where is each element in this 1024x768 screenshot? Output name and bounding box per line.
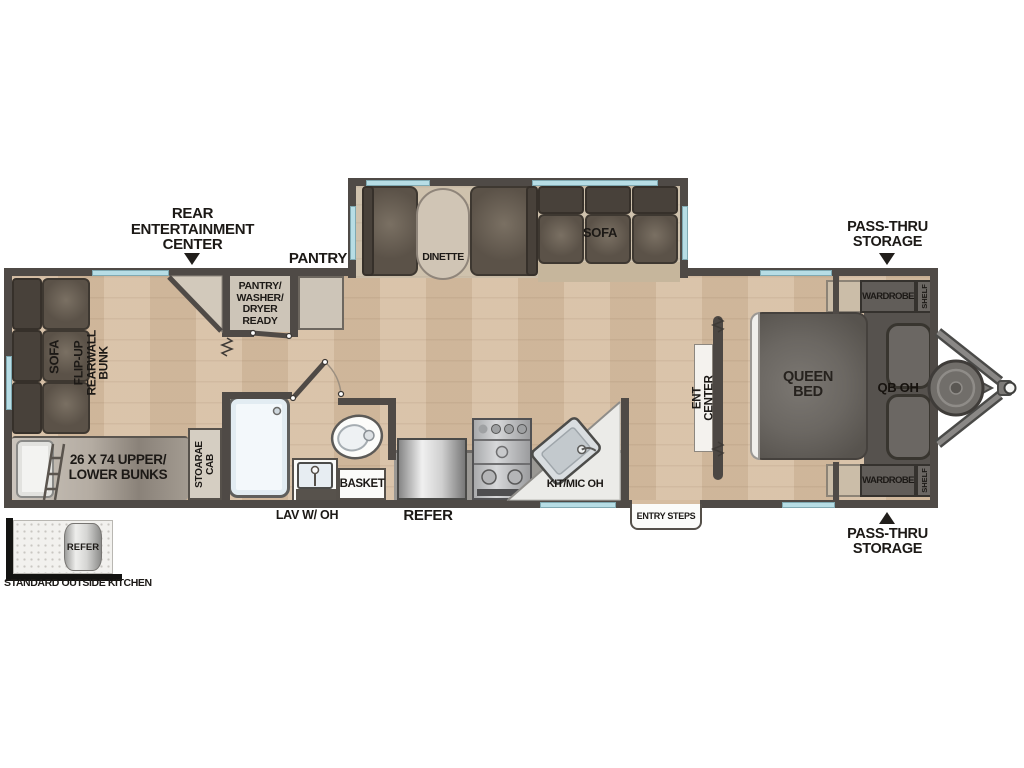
ent-center-label: ENT CENTER — [694, 344, 713, 452]
bed-sheet-edge — [750, 312, 760, 460]
pillow — [886, 394, 932, 460]
wall-right-front — [930, 268, 938, 508]
window — [540, 502, 616, 508]
flip-up-bunk-label: FLIP-UP REARWALL BUNK — [62, 275, 122, 450]
slideout-sofa-label: SOFA — [560, 226, 640, 240]
slideout-sofa-back-cushion — [632, 186, 678, 214]
trailer-hitch — [929, 332, 1016, 444]
outside-kitchen-refrigerator: REFER — [64, 523, 102, 571]
qb-oh-label: QB OH — [866, 381, 930, 395]
passthru-wall-bottom — [833, 462, 839, 500]
shelf-top-label: SHELF — [920, 284, 929, 309]
pass-thru-bottom-arrow-icon — [879, 512, 895, 524]
dinette-label: DINETTE — [416, 252, 470, 263]
kitchen-entry-wall — [621, 398, 629, 500]
wardrobe-top: WARDROBE — [860, 280, 916, 313]
lav-sink — [297, 462, 333, 489]
queen-bed-label: QUEEN BED — [760, 370, 856, 400]
dinette-bench-left-back — [362, 186, 374, 276]
closet-bottom-wall — [222, 330, 254, 337]
rear-entertainment-center-callout: REAR ENTERTAINMENT CENTER — [110, 206, 275, 253]
basket-box: BASKET — [338, 468, 386, 500]
outside-kitchen-frame-left — [6, 518, 13, 580]
bath-top-wall — [222, 392, 292, 399]
window — [682, 206, 688, 260]
lav-label: LAV W/ OH — [267, 509, 347, 522]
dinette-table — [416, 188, 470, 280]
pass-thru-storage-bottom-callout: PASS-THRU STORAGE — [845, 527, 930, 557]
hitch-coupler-ring — [1005, 383, 1016, 394]
rear-entertainment-arrow-icon — [184, 253, 200, 265]
entry-steps: ENTRY STEPS — [630, 504, 702, 530]
window — [532, 180, 658, 186]
bunks-label: 26 X 74 UPPER/ LOWER BUNKS — [48, 452, 188, 482]
stove — [472, 418, 532, 500]
window — [760, 270, 832, 276]
slideout-sofa-platform — [538, 262, 680, 282]
pass-thru-storage-top-callout: PASS-THRU STORAGE — [845, 220, 930, 250]
shelf-bottom-label: SHELF — [920, 468, 929, 493]
propane-tank-inner — [938, 370, 974, 406]
kit-mic-oh-label: KIT/MIC OH — [535, 479, 615, 490]
window — [6, 356, 12, 410]
floorplan-canvas: BASKET WARDROBE WARDROBE SHELF SHELF ENT… — [0, 0, 1024, 768]
toilet-room-right-wall — [388, 398, 396, 460]
passthru-cabinet-bottom — [826, 464, 862, 497]
wall-top-left — [4, 268, 348, 276]
hitch-plate — [962, 372, 992, 404]
pantry-closet-label: PANTRY/ WASHER/ DRYER READY — [228, 281, 292, 327]
hitch-coupler — [998, 381, 1012, 395]
passthru-cabinet-top — [826, 280, 862, 313]
shower — [228, 396, 290, 498]
refer-label: REFER — [393, 508, 463, 524]
window — [366, 180, 430, 186]
refrigerator — [397, 438, 467, 500]
wardrobe-bottom: WARDROBE — [860, 464, 916, 497]
dinette-bench-right-back — [526, 186, 538, 276]
slideout-sofa-back-cushion — [585, 186, 631, 214]
storage-cab-label: STOARAE CAB — [186, 428, 224, 500]
slideout-sofa-back-cushion — [538, 186, 584, 214]
passthru-wall-top — [833, 276, 839, 314]
lav-base-cabinet — [296, 489, 336, 500]
hitch-plate-hole — [969, 384, 977, 392]
pantry-callout: PANTRY — [287, 251, 349, 267]
pass-thru-top-arrow-icon — [879, 253, 895, 265]
window — [782, 502, 835, 508]
window — [350, 206, 356, 260]
outside-kitchen-caption: STANDARD OUTSIDE KITCHEN — [4, 578, 164, 589]
pantry-cabinet — [298, 276, 344, 330]
propane-valve — [950, 382, 962, 394]
